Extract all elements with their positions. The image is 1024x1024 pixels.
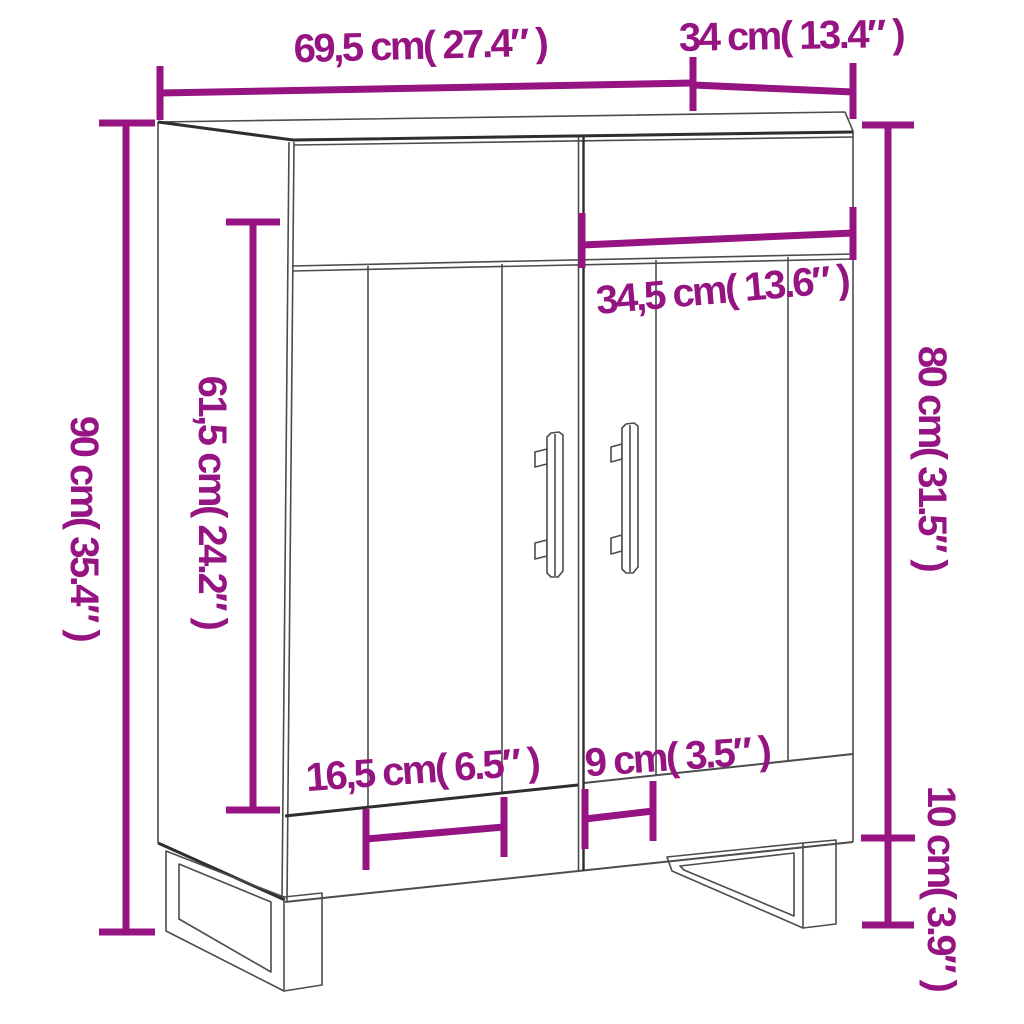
dim-line-body-height <box>861 125 915 838</box>
door-handles <box>535 423 638 577</box>
cabinet-legs <box>166 840 836 991</box>
dim-line-leg-inset <box>366 797 504 870</box>
left-leg <box>166 851 322 991</box>
dim-line-overall-height <box>99 123 155 932</box>
dimension-diagram: 69,5 cm( 27.4″ ) 34 cm( 13.4″ ) 90 cm( 3… <box>0 0 1024 1024</box>
dim-line-leg-height <box>862 838 914 925</box>
dim-label-overall-depth: 34 cm( 13.4″ ) <box>679 14 904 58</box>
dim-line-leg-spacing <box>585 781 653 849</box>
dim-line-door-height <box>226 222 280 810</box>
left-door-handle <box>535 432 563 577</box>
dim-label-leg-height: 10 cm( 3.9″ ) <box>921 786 961 991</box>
dim-label-door-height: 61,5 cm( 24.2″ ) <box>192 376 232 629</box>
right-door-handle <box>611 423 638 573</box>
dim-line-overall-width <box>160 66 693 120</box>
dim-line-overall-depth <box>693 57 853 119</box>
dim-label-overall-width: 69,5 cm( 27.4″ ) <box>293 23 547 70</box>
cabinet-drawing <box>0 0 1024 1024</box>
dim-label-body-height: 80 cm( 31.5″ ) <box>912 346 952 570</box>
dim-label-overall-height: 90 cm( 35.4″ ) <box>64 416 104 640</box>
